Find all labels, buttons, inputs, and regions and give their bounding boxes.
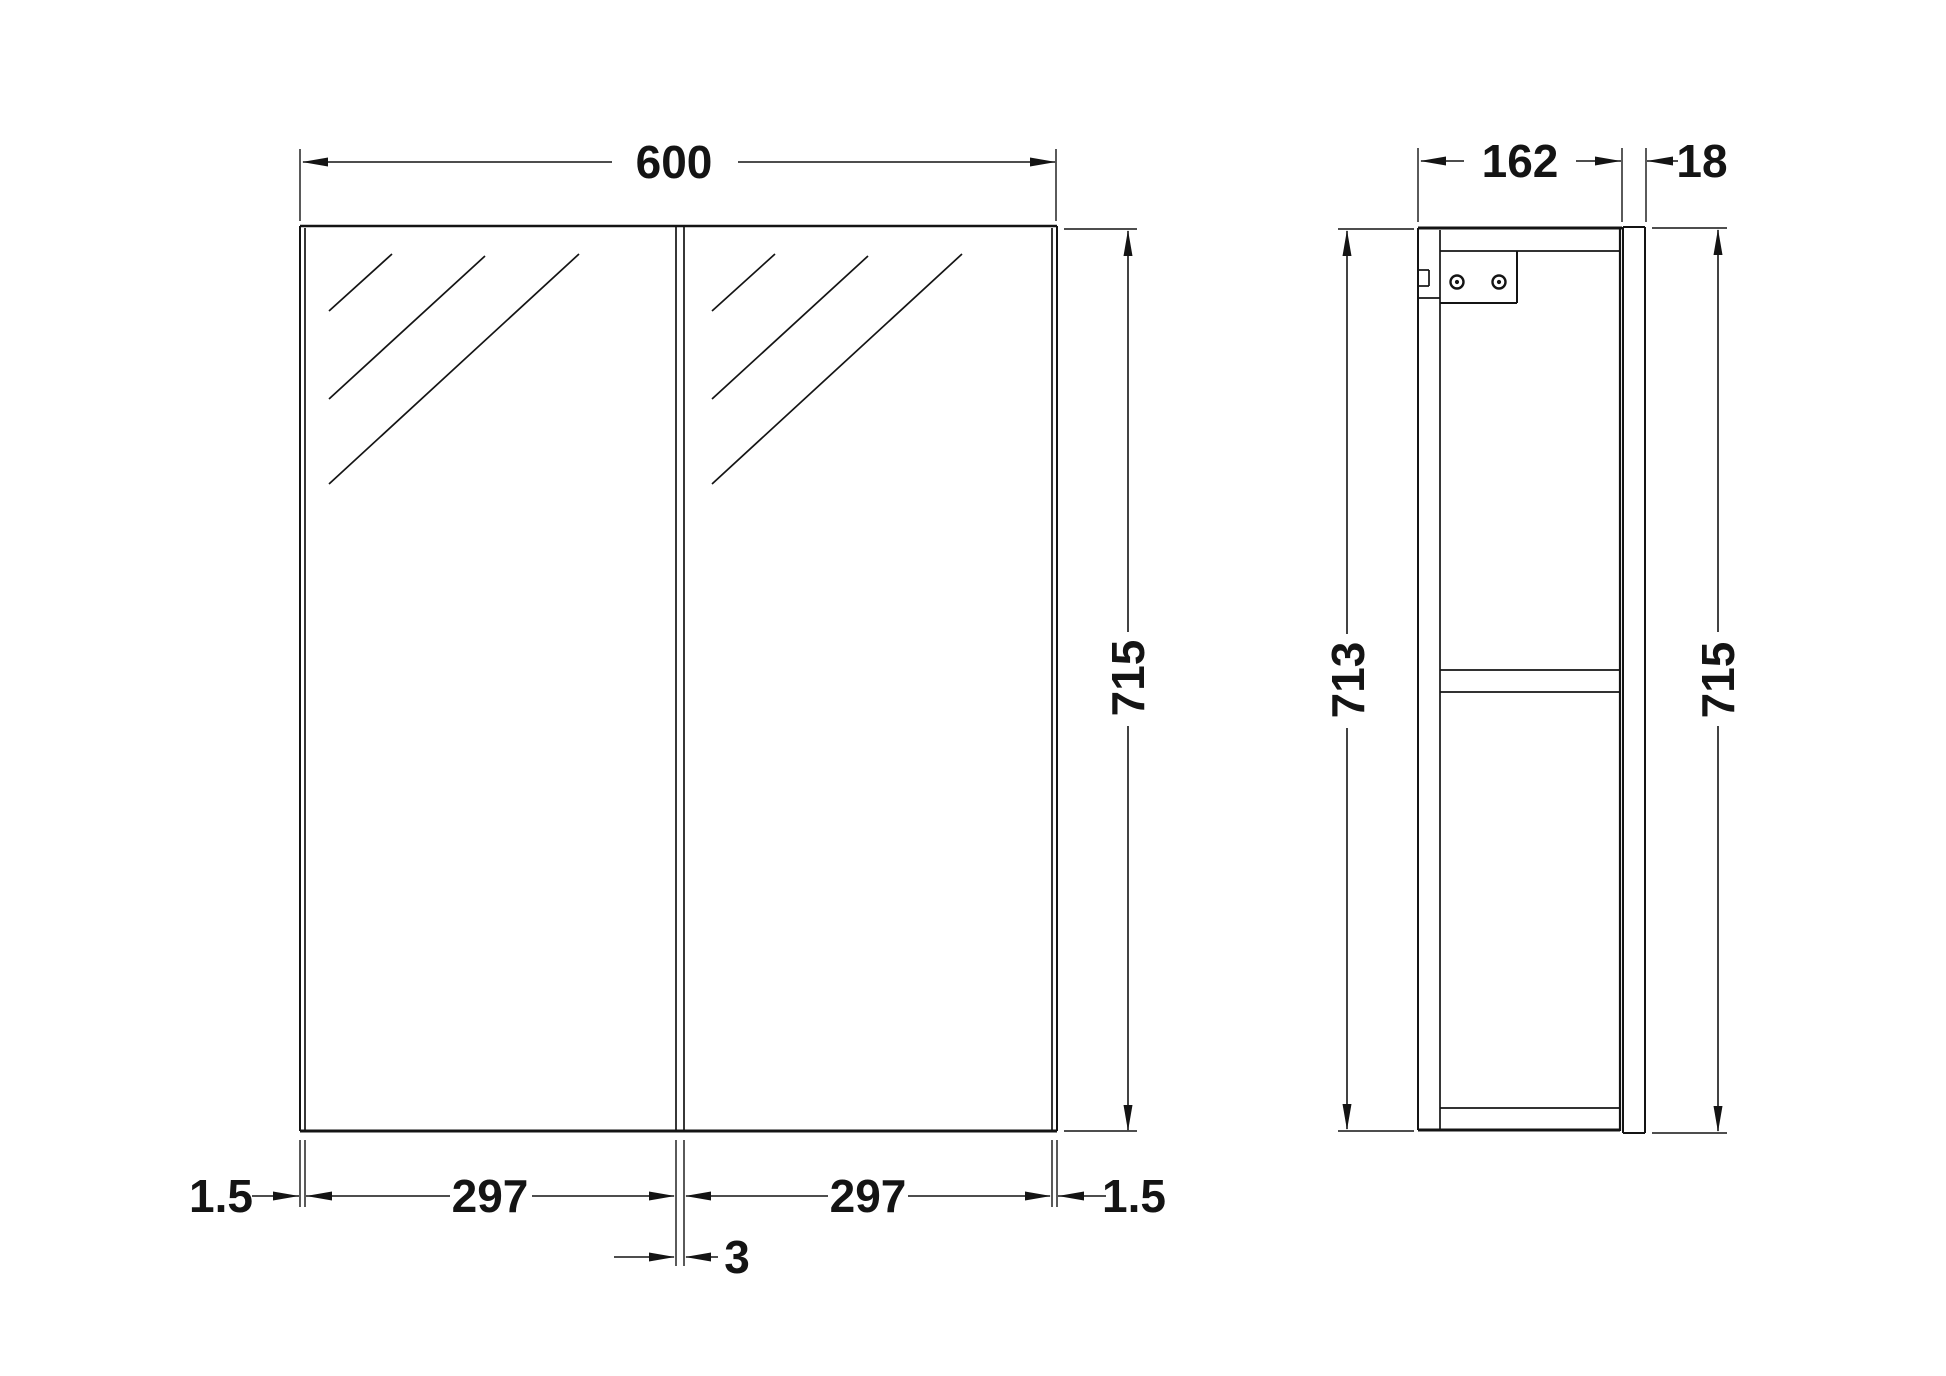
dim-297-left-label: 297 bbox=[452, 1170, 529, 1222]
arrow-162-left bbox=[1420, 157, 1446, 166]
right-door-hatch-1 bbox=[712, 254, 775, 311]
left-door-hatch-3 bbox=[329, 254, 579, 484]
arrow-713-down bbox=[1343, 1104, 1352, 1130]
right-door-hatch-3 bbox=[712, 254, 962, 484]
arrow-18 bbox=[1647, 157, 1673, 166]
arrow-1-5-left bbox=[273, 1192, 299, 1201]
arrow-715-front-down bbox=[1124, 1105, 1133, 1131]
dim-297-right-label: 297 bbox=[830, 1170, 907, 1222]
arrow-600-left bbox=[302, 158, 328, 167]
dim-1-5-left-label: 1.5 bbox=[189, 1170, 253, 1222]
arrow-297-left-start bbox=[306, 1192, 332, 1201]
arrow-297-left-end bbox=[649, 1192, 675, 1201]
bracket-screw-left-hole bbox=[1455, 280, 1459, 284]
bracket-screw-right-hole bbox=[1497, 280, 1501, 284]
arrow-713-up bbox=[1343, 230, 1352, 256]
technical-drawing-page: 600162187157137151.52972971.53 bbox=[0, 0, 1946, 1376]
arrow-297-right-start bbox=[685, 1192, 711, 1201]
arrow-600-right bbox=[1030, 158, 1056, 167]
mirror-cabinet-dimension-drawing: 600162187157137151.52972971.53 bbox=[0, 0, 1946, 1376]
dim-713-label: 713 bbox=[1322, 642, 1374, 719]
arrow-297-right-end bbox=[1025, 1192, 1051, 1201]
dim-715-front-label: 715 bbox=[1102, 640, 1154, 717]
left-door-hatch-2 bbox=[329, 256, 485, 399]
dim-162-label: 162 bbox=[1482, 135, 1559, 187]
dim-1-5-right-label: 1.5 bbox=[1102, 1170, 1166, 1222]
arrow-162-right bbox=[1595, 157, 1621, 166]
arrow-3-left bbox=[649, 1253, 675, 1262]
arrow-715-front-up bbox=[1124, 230, 1133, 256]
dim-715-side-label: 715 bbox=[1692, 642, 1744, 719]
arrow-715-side-down bbox=[1714, 1106, 1723, 1132]
dim-18-label: 18 bbox=[1676, 135, 1727, 187]
dim-3-label: 3 bbox=[724, 1231, 750, 1283]
right-door-hatch-2 bbox=[712, 256, 868, 399]
arrow-715-side-up bbox=[1714, 229, 1723, 255]
left-door-hatch-1 bbox=[329, 254, 392, 311]
arrow-3-right bbox=[685, 1253, 711, 1262]
arrow-1-5-right bbox=[1058, 1192, 1084, 1201]
dim-600-label: 600 bbox=[636, 136, 713, 188]
drawing-canvas: 600162187157137151.52972971.53 bbox=[0, 0, 1946, 1376]
